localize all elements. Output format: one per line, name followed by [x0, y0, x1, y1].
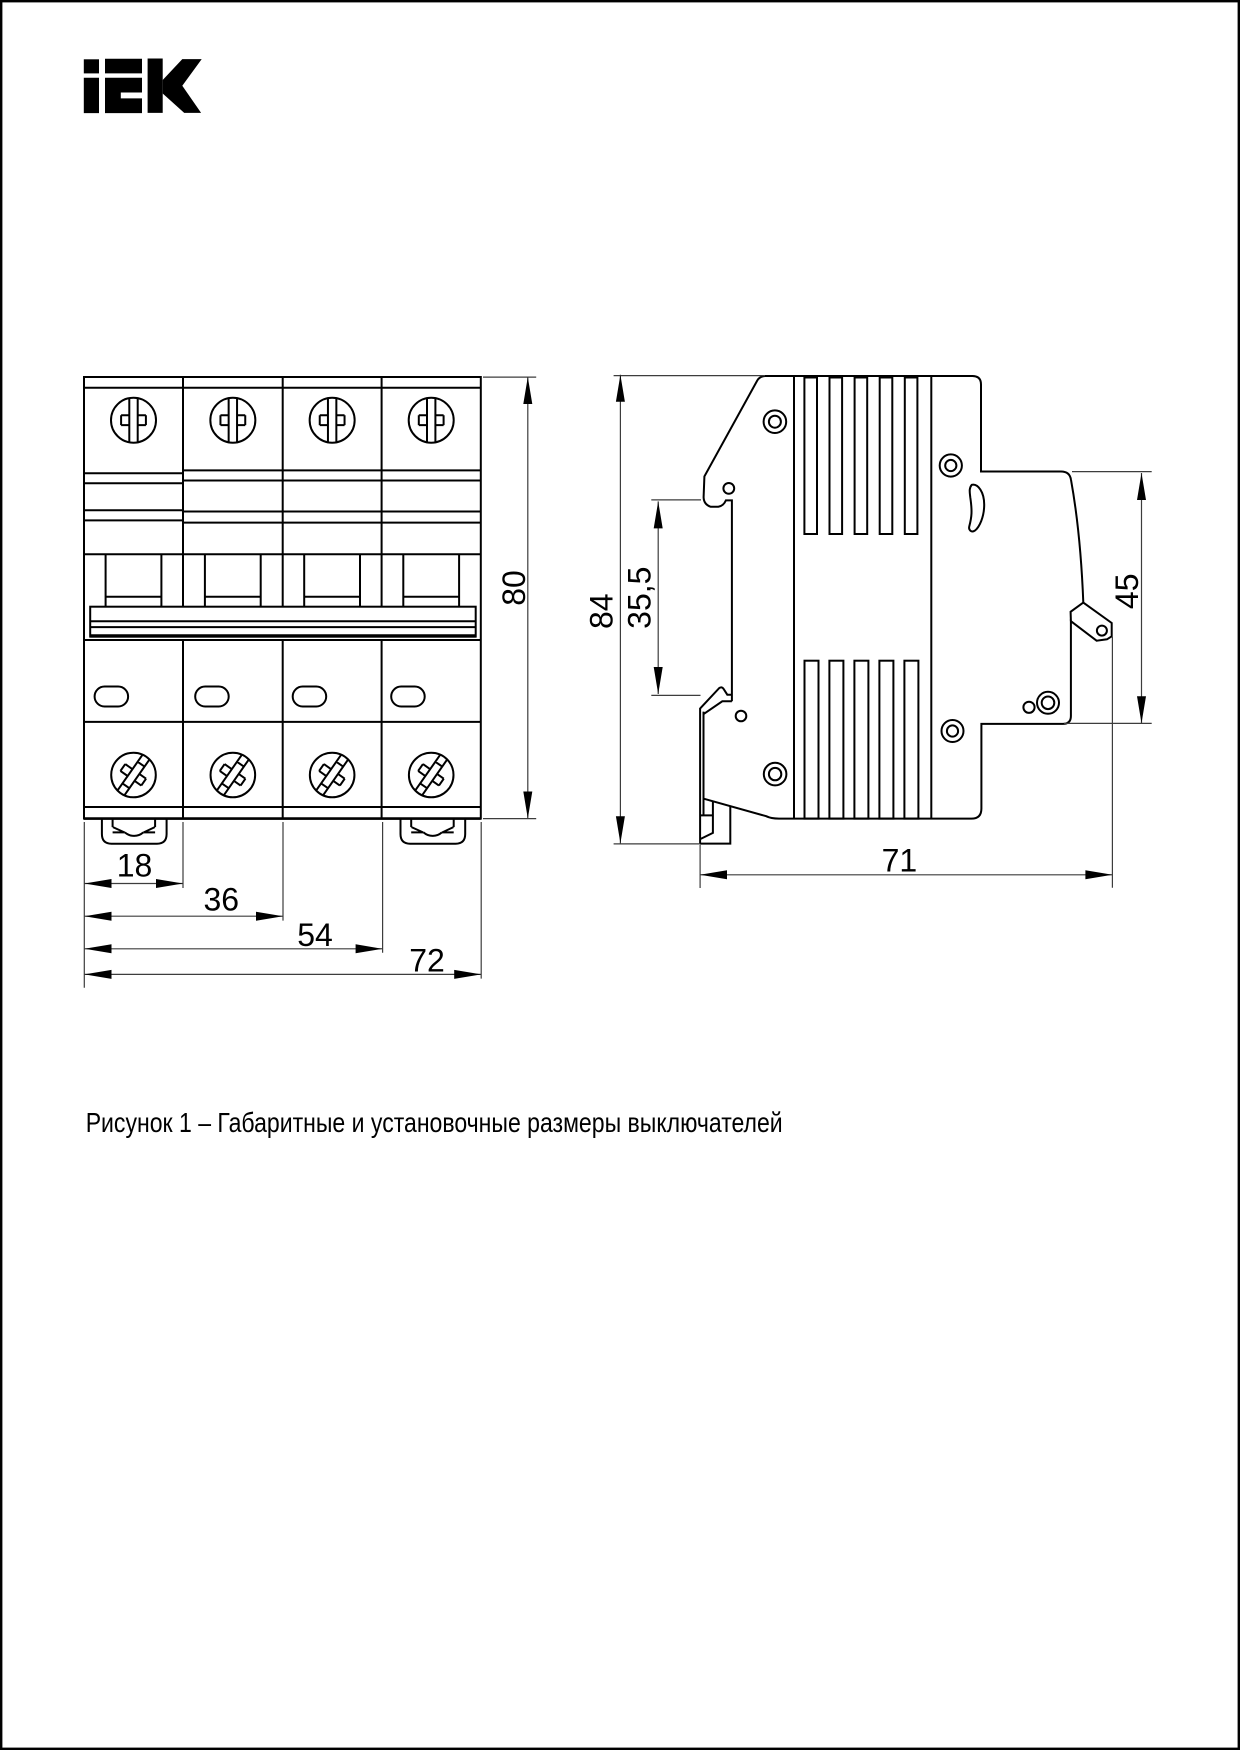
svg-text:71: 71 — [882, 843, 918, 879]
svg-text:84: 84 — [583, 593, 619, 629]
svg-text:45: 45 — [1109, 574, 1145, 610]
svg-text:80: 80 — [496, 570, 532, 606]
svg-text:36: 36 — [204, 882, 240, 918]
svg-text:Рисунок 1 – Габаритные и устан: Рисунок 1 – Габаритные и установочные ра… — [86, 1107, 783, 1138]
svg-text:72: 72 — [409, 943, 445, 979]
svg-text:18: 18 — [117, 847, 153, 883]
svg-text:54: 54 — [297, 917, 333, 953]
svg-text:35,5: 35,5 — [622, 567, 658, 629]
